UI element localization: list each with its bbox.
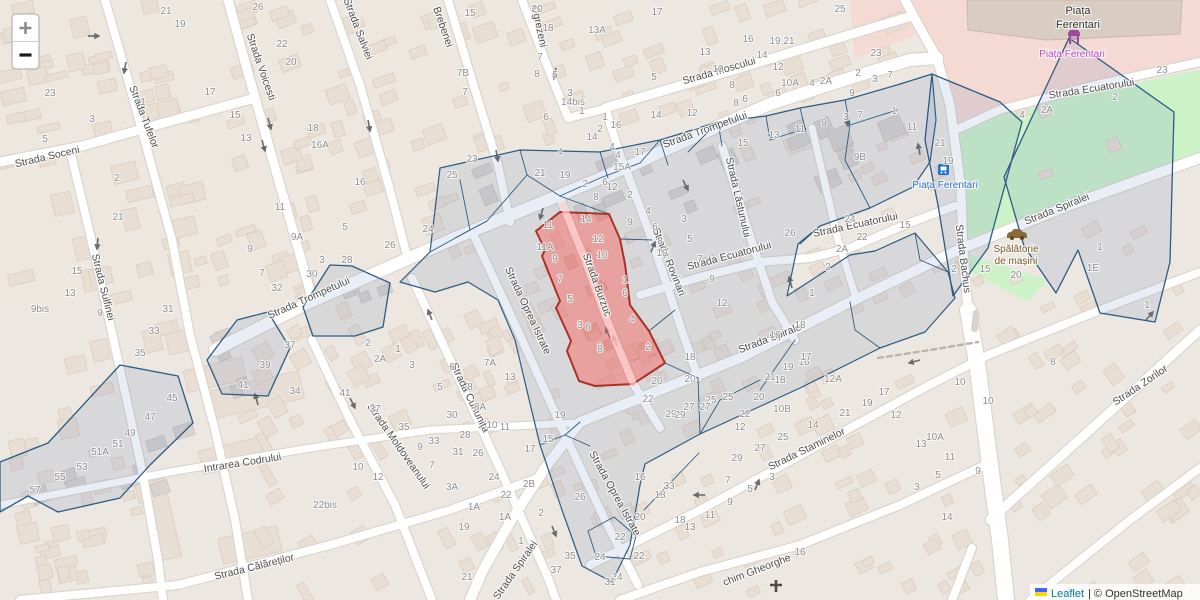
svg-text:37: 37 — [284, 340, 296, 351]
svg-text:22: 22 — [500, 490, 512, 501]
svg-text:9: 9 — [821, 118, 827, 129]
svg-text:24: 24 — [844, 214, 856, 225]
svg-text:2: 2 — [1112, 92, 1118, 103]
svg-text:11: 11 — [795, 124, 806, 135]
svg-text:22bis: 22bis — [313, 500, 337, 511]
svg-text:26: 26 — [574, 492, 586, 503]
svg-text:12A: 12A — [824, 374, 842, 385]
svg-text:29: 29 — [731, 453, 743, 464]
svg-text:4: 4 — [645, 206, 651, 217]
svg-text:2: 2 — [365, 338, 371, 349]
svg-text:17: 17 — [524, 444, 536, 455]
svg-text:19: 19 — [782, 362, 794, 373]
svg-text:9: 9 — [709, 274, 715, 285]
svg-text:10: 10 — [982, 396, 994, 407]
svg-text:15: 15 — [542, 434, 554, 445]
svg-text:19: 19 — [559, 170, 571, 181]
svg-text:5: 5 — [747, 484, 753, 495]
svg-text:19,21: 19,21 — [769, 36, 794, 47]
svg-text:47: 47 — [144, 412, 156, 423]
svg-text:26: 26 — [784, 228, 796, 239]
svg-text:33: 33 — [428, 436, 440, 447]
svg-text:1: 1 — [809, 288, 815, 299]
svg-text:15: 15 — [899, 220, 911, 231]
svg-text:21: 21 — [764, 372, 776, 383]
svg-text:16: 16 — [610, 120, 622, 131]
svg-text:8: 8 — [597, 344, 603, 355]
svg-text:1: 1 — [518, 536, 524, 547]
svg-text:22: 22 — [276, 39, 288, 50]
svg-text:3: 3 — [681, 214, 687, 225]
svg-text:7A: 7A — [484, 358, 497, 369]
svg-text:37: 37 — [550, 565, 562, 576]
svg-text:3: 3 — [577, 320, 583, 331]
svg-text:13: 13 — [504, 372, 516, 383]
svg-text:1: 1 — [1144, 300, 1150, 311]
svg-text:1: 1 — [622, 275, 628, 286]
svg-text:7: 7 — [259, 268, 265, 279]
svg-text:1: 1 — [602, 112, 608, 123]
svg-text:9: 9 — [552, 254, 558, 265]
svg-text:12: 12 — [734, 422, 746, 433]
svg-text:6: 6 — [652, 222, 658, 233]
svg-text:Leaflet: Leaflet — [1051, 588, 1084, 600]
svg-text:4: 4 — [629, 314, 635, 325]
svg-text:7: 7 — [462, 87, 468, 98]
svg-text:22: 22 — [633, 551, 645, 562]
svg-text:7: 7 — [697, 254, 703, 265]
svg-text:26: 26 — [384, 240, 396, 251]
svg-text:15: 15 — [979, 264, 991, 275]
svg-text:28: 28 — [341, 255, 353, 266]
svg-text:30: 30 — [306, 269, 318, 280]
svg-text:18: 18 — [774, 375, 786, 386]
svg-text:10: 10 — [656, 248, 668, 259]
svg-text:12: 12 — [716, 298, 728, 309]
svg-text:11: 11 — [500, 422, 511, 433]
svg-text:de mașini: de mașini — [995, 256, 1038, 267]
svg-text:9: 9 — [849, 88, 855, 99]
svg-text:25: 25 — [446, 170, 458, 181]
svg-text:57: 57 — [29, 485, 41, 496]
svg-text:9: 9 — [247, 244, 253, 255]
svg-text:2: 2 — [855, 68, 861, 79]
svg-text:Piața Ferentari: Piața Ferentari — [1039, 49, 1105, 60]
svg-text:14: 14 — [941, 512, 953, 523]
svg-text:4: 4 — [615, 150, 621, 161]
svg-text:18: 18 — [542, 23, 554, 34]
svg-text:13: 13 — [768, 130, 780, 141]
svg-text:6: 6 — [622, 288, 628, 299]
svg-text:3: 3 — [409, 360, 415, 371]
svg-text:39: 39 — [259, 360, 271, 371]
svg-text:51A: 51A — [91, 447, 109, 458]
svg-text:5: 5 — [342, 222, 348, 233]
svg-text:16: 16 — [769, 330, 781, 341]
svg-text:19: 19 — [174, 19, 186, 30]
svg-text:2: 2 — [627, 190, 633, 201]
svg-text:26: 26 — [472, 448, 484, 459]
svg-text:Spălătorie: Spălătorie — [993, 244, 1038, 255]
svg-text:2: 2 — [645, 342, 651, 353]
svg-text:2B: 2B — [523, 479, 536, 490]
svg-text:41: 41 — [339, 388, 351, 399]
svg-text:25: 25 — [834, 4, 846, 15]
svg-text:45: 45 — [166, 393, 178, 404]
svg-text:11A: 11A — [536, 242, 553, 253]
svg-text:11: 11 — [543, 220, 554, 231]
svg-text:5: 5 — [687, 234, 693, 245]
svg-text:7: 7 — [429, 460, 435, 471]
svg-text:5: 5 — [651, 72, 657, 83]
svg-text:18: 18 — [794, 320, 806, 331]
svg-text:4: 4 — [1019, 110, 1025, 121]
svg-text:51: 51 — [112, 439, 124, 450]
svg-text:21: 21 — [112, 212, 124, 223]
svg-text:19: 19 — [942, 156, 954, 167]
svg-text:55: 55 — [54, 472, 66, 483]
svg-text:Piața: Piața — [1065, 5, 1091, 17]
svg-text:8: 8 — [534, 69, 540, 80]
svg-text:17: 17 — [878, 387, 890, 398]
svg-text:11: 11 — [945, 452, 956, 463]
svg-text:16A: 16A — [311, 140, 329, 151]
svg-text:2A: 2A — [836, 244, 849, 255]
svg-text:22: 22 — [642, 394, 654, 405]
svg-text:2: 2 — [597, 124, 603, 135]
svg-text:5: 5 — [437, 382, 443, 393]
svg-text:3: 3 — [319, 255, 325, 266]
svg-text:1: 1 — [891, 106, 897, 117]
svg-text:3: 3 — [567, 88, 573, 99]
svg-text:13: 13 — [699, 47, 711, 58]
svg-text:8A: 8A — [474, 402, 487, 413]
svg-text:20: 20 — [1010, 270, 1022, 281]
svg-text:12: 12 — [890, 410, 902, 421]
svg-text:9bis: 9bis — [31, 304, 49, 315]
svg-text:3A: 3A — [446, 482, 459, 493]
svg-text:14: 14 — [580, 214, 592, 225]
svg-text:13: 13 — [64, 288, 76, 299]
svg-text:32: 32 — [271, 283, 283, 294]
svg-text:26: 26 — [252, 2, 264, 13]
svg-text:14: 14 — [756, 50, 768, 61]
svg-text:20: 20 — [531, 4, 543, 15]
svg-text:3: 3 — [89, 114, 95, 125]
svg-text:31: 31 — [162, 304, 174, 315]
svg-text:16: 16 — [794, 547, 806, 558]
svg-text:17: 17 — [634, 147, 646, 158]
svg-text:1: 1 — [395, 344, 401, 355]
svg-text:18: 18 — [654, 490, 666, 501]
svg-text:17: 17 — [651, 7, 663, 18]
svg-text:10A: 10A — [781, 78, 799, 89]
svg-text:31: 31 — [452, 447, 464, 458]
svg-text:30: 30 — [446, 410, 458, 421]
svg-text:24: 24 — [594, 552, 606, 563]
svg-text:7: 7 — [537, 52, 543, 63]
svg-text:13A: 13A — [588, 25, 606, 36]
svg-text:13: 13 — [684, 522, 696, 533]
svg-text:10: 10 — [486, 420, 498, 431]
svg-text:22: 22 — [856, 232, 868, 243]
svg-text:25: 25 — [777, 432, 789, 443]
svg-text:10B: 10B — [773, 404, 791, 415]
svg-text:23: 23 — [466, 154, 478, 165]
svg-text:15: 15 — [71, 266, 83, 277]
svg-text:7: 7 — [557, 274, 563, 285]
svg-text:25: 25 — [722, 392, 734, 403]
svg-text:2A: 2A — [374, 354, 387, 365]
svg-text:10: 10 — [712, 64, 724, 75]
svg-text:1: 1 — [140, 97, 146, 108]
svg-text:4: 4 — [557, 147, 563, 158]
svg-text:20: 20 — [753, 392, 765, 403]
svg-text:9: 9 — [97, 308, 103, 319]
svg-text:35: 35 — [564, 551, 576, 562]
svg-text:27: 27 — [754, 443, 766, 454]
svg-text:9: 9 — [417, 442, 423, 453]
svg-text:1E: 1E — [1087, 263, 1100, 274]
svg-text:15: 15 — [229, 110, 241, 121]
svg-text:17: 17 — [800, 352, 812, 363]
svg-text:17: 17 — [204, 87, 216, 98]
svg-text:8: 8 — [1050, 357, 1056, 368]
svg-text:21: 21 — [839, 408, 851, 419]
svg-text:18: 18 — [307, 123, 319, 134]
svg-text:20: 20 — [634, 512, 646, 523]
svg-text:35: 35 — [398, 422, 410, 433]
svg-text:7: 7 — [725, 475, 731, 486]
svg-text:2: 2 — [114, 173, 120, 184]
svg-text:15: 15 — [464, 8, 476, 19]
svg-text:9: 9 — [627, 217, 633, 228]
svg-text:11: 11 — [275, 202, 286, 213]
svg-text:7: 7 — [887, 70, 893, 81]
svg-text:13: 13 — [915, 439, 927, 450]
svg-text:6: 6 — [543, 112, 549, 123]
svg-text:6: 6 — [775, 88, 781, 99]
svg-text:19: 19 — [554, 410, 566, 421]
svg-text:15A: 15A — [613, 162, 631, 173]
svg-text:13: 13 — [240, 133, 252, 144]
svg-text:9: 9 — [975, 466, 981, 477]
svg-text:35: 35 — [134, 348, 146, 359]
svg-text:2A: 2A — [820, 76, 833, 87]
svg-text:41: 41 — [237, 380, 249, 391]
svg-text:8: 8 — [467, 382, 473, 393]
svg-text:Ferentari: Ferentari — [1056, 19, 1100, 31]
svg-text:12: 12 — [772, 62, 784, 73]
svg-text:31: 31 — [604, 577, 616, 588]
svg-text:7: 7 — [857, 110, 863, 121]
svg-text:Piața Ferentari: Piața Ferentari — [912, 180, 978, 191]
svg-text:10: 10 — [596, 250, 608, 261]
svg-text:6: 6 — [602, 177, 608, 188]
svg-text:12: 12 — [686, 108, 698, 119]
svg-text:20: 20 — [285, 57, 297, 68]
svg-text:11: 11 — [907, 122, 918, 133]
svg-text:| © OpenStreetMap: | © OpenStreetMap — [1088, 588, 1183, 600]
svg-text:28: 28 — [459, 430, 471, 441]
svg-text:5: 5 — [567, 294, 573, 305]
svg-text:23: 23 — [44, 88, 56, 99]
svg-text:23: 23 — [870, 48, 882, 59]
svg-text:3: 3 — [843, 112, 849, 123]
svg-text:20: 20 — [651, 376, 663, 387]
svg-text:8: 8 — [593, 192, 599, 203]
svg-text:53: 53 — [76, 462, 88, 473]
svg-text:19: 19 — [861, 398, 873, 409]
svg-text:11: 11 — [705, 510, 716, 521]
svg-text:24: 24 — [488, 472, 500, 483]
svg-text:23: 23 — [1156, 65, 1168, 76]
svg-text:1A: 1A — [499, 512, 512, 523]
svg-text:2: 2 — [825, 262, 831, 273]
svg-text:4: 4 — [809, 78, 815, 89]
svg-text:33: 33 — [148, 326, 160, 337]
svg-text:20: 20 — [684, 374, 696, 385]
svg-text:49: 49 — [124, 428, 136, 439]
svg-text:6: 6 — [742, 94, 748, 105]
svg-text:22: 22 — [614, 532, 626, 543]
svg-text:2A: 2A — [1041, 105, 1054, 116]
svg-text:9B: 9B — [854, 152, 867, 163]
svg-text:18: 18 — [684, 352, 696, 363]
svg-text:21: 21 — [934, 138, 946, 149]
svg-text:5: 5 — [935, 470, 941, 481]
svg-text:16: 16 — [634, 472, 646, 483]
svg-text:21: 21 — [160, 6, 172, 17]
svg-text:3: 3 — [769, 472, 775, 483]
svg-text:2: 2 — [582, 179, 588, 190]
svg-text:12: 12 — [372, 472, 384, 483]
svg-text:2: 2 — [951, 264, 957, 275]
svg-text:6: 6 — [449, 362, 455, 373]
svg-text:14: 14 — [807, 420, 819, 431]
svg-text:21: 21 — [534, 168, 546, 179]
svg-text:34: 34 — [289, 386, 301, 397]
svg-text:15: 15 — [737, 138, 749, 149]
svg-text:19: 19 — [458, 522, 470, 533]
svg-text:12: 12 — [592, 234, 604, 245]
svg-text:22: 22 — [739, 409, 751, 420]
svg-text:1: 1 — [1097, 242, 1103, 253]
svg-text:29: 29 — [674, 410, 686, 421]
svg-text:10: 10 — [954, 377, 966, 388]
svg-text:10A: 10A — [926, 432, 944, 443]
svg-text:6: 6 — [585, 322, 591, 333]
svg-text:10: 10 — [352, 462, 364, 473]
svg-text:16: 16 — [354, 177, 366, 188]
svg-text:21: 21 — [461, 572, 473, 583]
svg-text:14: 14 — [650, 110, 662, 121]
svg-text:12: 12 — [606, 182, 618, 193]
svg-text:9A: 9A — [291, 232, 304, 243]
svg-text:8: 8 — [733, 98, 739, 109]
svg-text:5: 5 — [42, 134, 48, 145]
svg-text:16: 16 — [742, 34, 754, 45]
svg-text:8: 8 — [657, 236, 663, 247]
svg-text:3: 3 — [872, 74, 878, 85]
svg-text:27: 27 — [699, 402, 711, 413]
svg-text:2: 2 — [538, 508, 544, 519]
svg-text:7B: 7B — [457, 68, 470, 79]
svg-text:9: 9 — [727, 497, 733, 508]
svg-text:8: 8 — [729, 80, 735, 91]
svg-text:37: 37 — [369, 404, 381, 415]
svg-text:3: 3 — [914, 482, 920, 493]
svg-text:1: 1 — [579, 106, 585, 117]
svg-text:5: 5 — [552, 70, 558, 81]
svg-text:24: 24 — [422, 224, 434, 235]
svg-text:1A: 1A — [468, 502, 481, 513]
